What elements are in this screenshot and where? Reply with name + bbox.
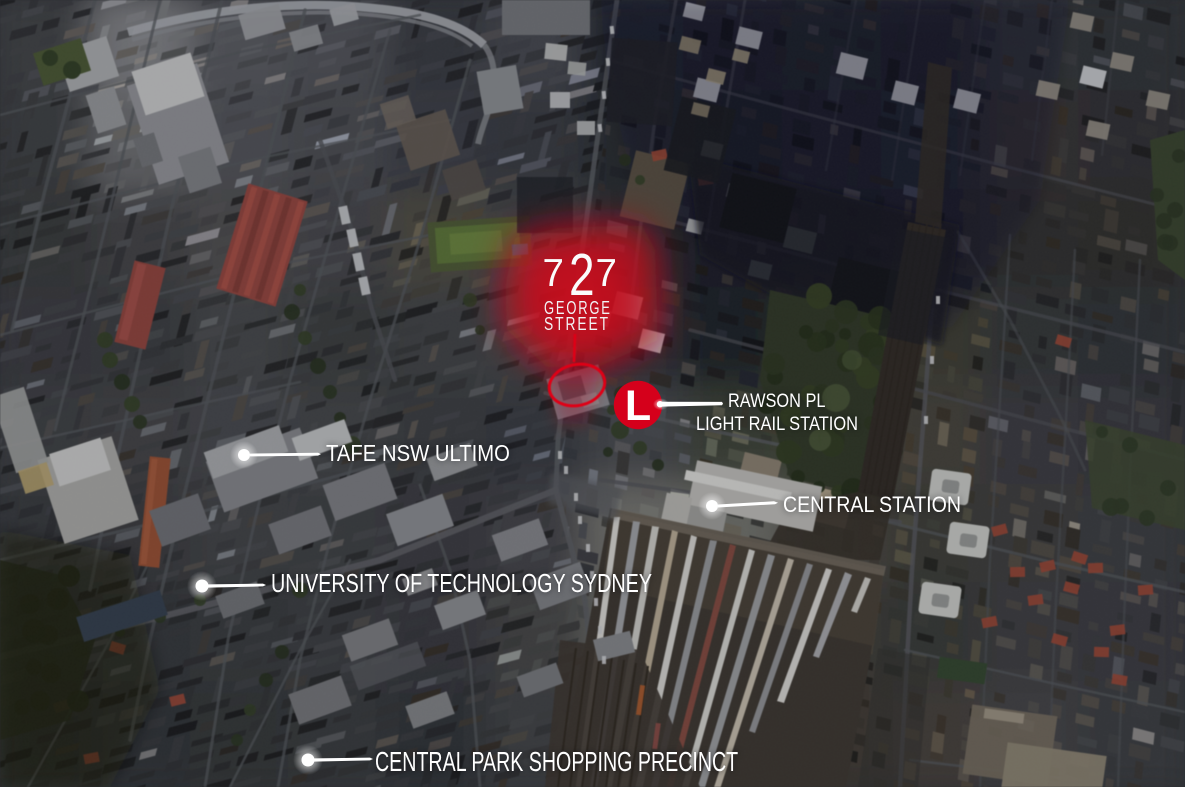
svg-text:L: L — [625, 382, 651, 430]
